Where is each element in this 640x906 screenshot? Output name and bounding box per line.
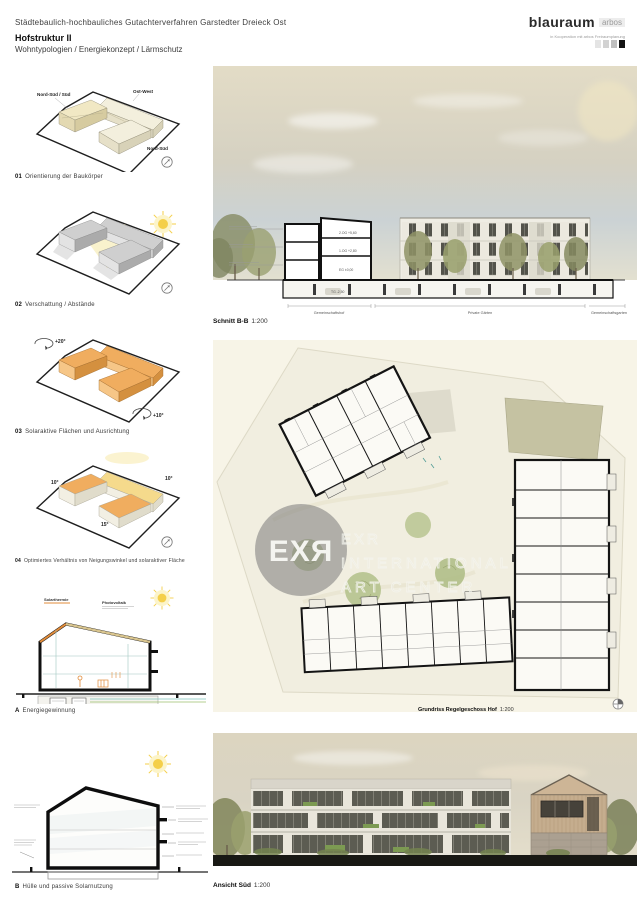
house-section <box>40 624 158 690</box>
rotation-arrow-top <box>35 339 53 350</box>
label-nord-sued: Nord-Süd <box>147 146 168 151</box>
elevation-panel <box>213 733 637 869</box>
zone-label-1: Gemeinschaftshof <box>314 311 346 315</box>
logo-blauraum: blauraum <box>529 14 595 30</box>
zone-label-3: Gemeinschaftsgarten <box>591 311 627 315</box>
swatch-1 <box>595 40 601 48</box>
diagram-01-caption: 01Orientierung der Baukörper <box>15 174 103 180</box>
level-tg: TG -2,50 <box>331 290 344 294</box>
zone-label-2: Private Gärten <box>468 311 492 315</box>
diagram-b-envelope-section <box>10 748 210 880</box>
diagram-a-caption: AEnergiegewinnung <box>15 708 75 714</box>
label-solarthermie: Solarthermie <box>44 597 69 602</box>
site-plate <box>37 466 179 548</box>
watermark-badge-text: EXЯ <box>269 535 334 568</box>
sun-icon <box>151 587 174 610</box>
swatch-4 <box>619 40 625 48</box>
label-roof-10-left: 10° <box>51 480 59 486</box>
elevation-caption: Ansicht Süd1:200 <box>213 882 270 889</box>
zone-brackets <box>288 304 625 308</box>
label-photovoltaik: Photovoltaik <box>102 600 127 605</box>
left-annotations <box>14 805 40 858</box>
long-building <box>251 779 511 855</box>
site-plate <box>37 340 179 422</box>
label-rot-20: +20° <box>55 339 65 345</box>
level-1og: 1.OG +2,80 <box>339 249 357 253</box>
sun-icon <box>145 751 171 777</box>
plan-caption: Grundriss Regelgeschoss Hof1:200 <box>418 707 514 713</box>
diagram-01-orientation: Nord-Süd / Süd Ost-West Nord-Süd <box>15 86 205 172</box>
underground-garage: TG -2,50 <box>283 280 613 298</box>
logo-block: blauraumarbos in Kooperation mit arbos F… <box>529 14 625 39</box>
page-subtitle: Wohntypologien / Energiekonzept / Lärmsc… <box>15 45 183 54</box>
north-arrow-icon <box>162 157 172 167</box>
watermark-line-1: EXR <box>341 531 381 548</box>
diagram-02-shading <box>15 198 205 298</box>
glow <box>105 452 149 464</box>
section-panel: 2.OG +5,60 1.OG +2,80 EG ±0,00 <box>213 66 637 316</box>
plan-building-east <box>513 460 616 690</box>
diagram-04-roof-angles: 10° 10° 15° <box>15 450 205 554</box>
house-section <box>48 788 167 868</box>
presentation-sheet: Städtebaulich-hochbauliches Gutachterver… <box>0 0 640 906</box>
right-annotations <box>162 806 208 856</box>
logo-arbos: arbos <box>599 18 625 27</box>
ground-and-storage <box>16 694 206 704</box>
level-2og: 2.OG +5,60 <box>339 231 357 235</box>
section-caption: Schnitt B-B1:200 <box>213 318 268 325</box>
diagram-a-energy-section: Solarthermie Photovoltaik <box>10 586 210 704</box>
sun-icon <box>150 211 176 237</box>
label-rot-10: +10° <box>153 413 163 419</box>
section-cut-building: 2.OG +5,60 1.OG +2,80 EG ±0,00 <box>285 218 371 280</box>
logo-subline: in Kooperation mit arbos Freiraumplanung <box>529 34 625 39</box>
watermark-line-3: ART CENTER <box>341 579 476 596</box>
swatch-2 <box>603 40 609 48</box>
label-ost-west: Ost-West <box>133 89 154 94</box>
label-roof-10-right: 10° <box>165 476 173 482</box>
project-line: Städtebaulich-hochbauliches Gutachterver… <box>15 18 286 27</box>
plan-north-icon <box>613 699 623 709</box>
diagram-04-caption: 04Optimiertes Verhältnis von Neigungswin… <box>15 558 185 564</box>
label-nord-sued-sued: Nord-Süd / Süd <box>37 92 71 97</box>
diagram-03-solar-surfaces: +20° +10° <box>15 330 205 425</box>
ground-band <box>213 855 637 866</box>
north-arrow-icon <box>162 283 172 293</box>
page-title: Hofstruktur II <box>15 33 72 43</box>
north-arrow-icon <box>162 537 172 547</box>
diagram-03-caption: 03Solaraktive Flächen und Ausrichtung <box>15 429 129 435</box>
watermark-line-2: INTERNATIONAL <box>341 555 512 572</box>
label-roof-15: 15° <box>101 522 109 528</box>
logo-color-swatches <box>595 40 625 48</box>
level-eg: EG ±0,00 <box>339 268 353 272</box>
swatch-3 <box>611 40 617 48</box>
plan-panel: EXЯ EXR INTERNATIONAL ART CENTER <box>213 340 637 712</box>
diagram-02-caption: 02Verschattung / Abstände <box>15 302 95 308</box>
photovoltaik-subnotes <box>102 607 134 609</box>
green-roof <box>505 398 603 460</box>
diagram-b-caption: BHülle und passive Solarnutzung <box>15 884 113 890</box>
